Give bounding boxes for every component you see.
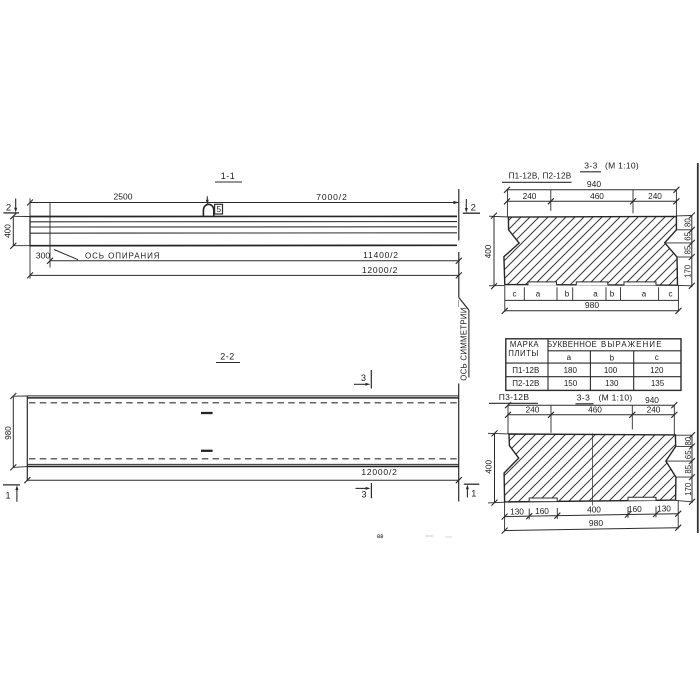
svg-text:(М 1:10): (М 1:10) xyxy=(605,161,639,171)
svg-text:П1-12В, П2-12В: П1-12В, П2-12В xyxy=(509,171,572,180)
svg-text:П3-12В: П3-12В xyxy=(499,392,530,402)
svg-text:400: 400 xyxy=(483,459,493,473)
svg-text:2-2: 2-2 xyxy=(220,352,235,362)
svg-text:ПЛИТЫ: ПЛИТЫ xyxy=(508,349,539,358)
svg-text:БУКВЕННОЕ: БУКВЕННОЕ xyxy=(547,340,597,349)
svg-text:170: 170 xyxy=(684,264,693,278)
svg-text:12000/2: 12000/2 xyxy=(362,265,398,275)
svg-text:а: а xyxy=(593,290,598,299)
svg-text:460: 460 xyxy=(590,191,604,201)
svg-text:120: 120 xyxy=(650,366,664,375)
svg-text:ОСЬ СИММЕТРИИ: ОСЬ СИММЕТРИИ xyxy=(460,307,469,380)
svg-text:1: 1 xyxy=(471,488,476,498)
svg-text:3: 3 xyxy=(361,373,366,383)
svg-text:130: 130 xyxy=(605,379,619,388)
svg-text:5: 5 xyxy=(216,204,221,214)
svg-text:240: 240 xyxy=(647,404,661,414)
svg-text:с: с xyxy=(655,353,659,362)
svg-text:400: 400 xyxy=(3,224,13,238)
svg-text:3-3: 3-3 xyxy=(584,161,598,171)
svg-text:1: 1 xyxy=(5,490,10,500)
svg-text:160: 160 xyxy=(628,504,642,514)
svg-text:460: 460 xyxy=(588,404,602,414)
svg-text:2: 2 xyxy=(471,203,476,214)
svg-text:80: 80 xyxy=(684,218,693,227)
svg-text:вв: вв xyxy=(377,534,383,540)
svg-text:П2-12В: П2-12В xyxy=(512,379,539,388)
svg-text:130: 130 xyxy=(510,506,524,516)
svg-text:ОСЬ ОПИРАНИЯ: ОСЬ ОПИРАНИЯ xyxy=(85,251,160,260)
svg-text:3-3: 3-3 xyxy=(577,393,591,403)
svg-text:МАРКА: МАРКА xyxy=(510,340,539,349)
svg-text:130: 130 xyxy=(657,503,671,513)
svg-text:12000/2: 12000/2 xyxy=(361,467,397,477)
svg-text:(М 1:10): (М 1:10) xyxy=(598,393,632,403)
svg-text:11400/2: 11400/2 xyxy=(363,250,399,260)
svg-text:940: 940 xyxy=(645,395,659,405)
svg-text:980: 980 xyxy=(585,300,599,310)
svg-text:b: b xyxy=(565,290,570,299)
svg-text:980: 980 xyxy=(589,518,603,528)
svg-text:240: 240 xyxy=(523,191,537,201)
svg-text:180: 180 xyxy=(564,366,578,375)
svg-text:400: 400 xyxy=(587,505,601,515)
svg-text:П1-12В: П1-12В xyxy=(512,366,539,375)
svg-text:400: 400 xyxy=(483,244,493,258)
svg-text:160: 160 xyxy=(535,506,549,516)
svg-text:170: 170 xyxy=(684,482,693,496)
svg-text:b: b xyxy=(610,290,615,299)
svg-text:1-1: 1-1 xyxy=(221,171,236,181)
svg-text:2: 2 xyxy=(6,203,11,214)
svg-text:150: 150 xyxy=(564,379,578,388)
svg-text:с: с xyxy=(669,290,673,299)
svg-text:300: 300 xyxy=(36,251,50,261)
svg-text:80: 80 xyxy=(684,436,693,445)
svg-text:3: 3 xyxy=(361,490,366,500)
svg-text:а: а xyxy=(536,290,541,299)
svg-text:240: 240 xyxy=(526,404,540,414)
svg-text:7000/2: 7000/2 xyxy=(316,192,347,202)
svg-text:а: а xyxy=(567,353,572,362)
svg-text:85: 85 xyxy=(684,464,693,473)
svg-text:85: 85 xyxy=(684,245,693,254)
svg-text:135: 135 xyxy=(651,379,665,388)
svg-text:b: b xyxy=(610,353,615,362)
svg-text:65: 65 xyxy=(684,450,693,459)
svg-text:100: 100 xyxy=(604,366,618,375)
svg-text:240: 240 xyxy=(648,191,662,201)
svg-text:65: 65 xyxy=(684,231,693,240)
svg-text:2500: 2500 xyxy=(114,192,133,202)
svg-text:ВЫРАЖЕНИЕ: ВЫРАЖЕНИЕ xyxy=(601,340,663,349)
svg-text:а: а xyxy=(642,290,647,299)
svg-text:940: 940 xyxy=(587,179,601,189)
svg-text:с: с xyxy=(513,290,517,299)
svg-text:980: 980 xyxy=(4,426,13,440)
